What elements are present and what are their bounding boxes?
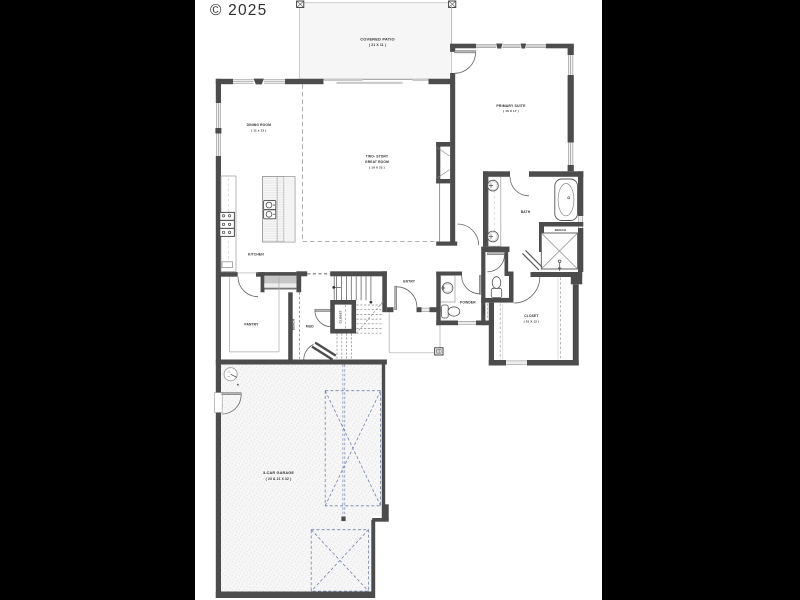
svg-text:BENCH: BENCH — [292, 319, 296, 330]
svg-text:COVERED PATIO: COVERED PATIO — [360, 36, 394, 41]
svg-text:PRIMARY SUITE: PRIMARY SUITE — [496, 104, 526, 108]
svg-text:GREAT ROOM: GREAT ROOM — [365, 160, 389, 164]
svg-text:© 2025: © 2025 — [210, 2, 267, 19]
svg-text:3-CAR GARAGE: 3-CAR GARAGE — [263, 471, 294, 475]
svg-text:LINEN: LINEN — [482, 305, 486, 314]
svg-text:KITCHEN: KITCHEN — [248, 252, 264, 256]
svg-text:ENTRY: ENTRY — [403, 279, 415, 283]
svg-text:( 16 X 17 ): ( 16 X 17 ) — [503, 109, 519, 113]
svg-text:DINING ROOM: DINING ROOM — [247, 123, 271, 127]
svg-text:( 19 X 22 ): ( 19 X 22 ) — [369, 165, 385, 169]
svg-text:( 11 x 13 ): ( 11 x 13 ) — [251, 128, 266, 132]
svg-text:PANTRY: PANTRY — [244, 322, 259, 326]
svg-text:( 23 & 21 X 32 ): ( 23 & 21 X 32 ) — [266, 477, 292, 481]
svg-text:CLOSET: CLOSET — [524, 314, 538, 318]
svg-text:TWO- STORY: TWO- STORY — [366, 155, 389, 159]
svg-text:MUD: MUD — [306, 324, 314, 328]
svg-text:BENCH: BENCH — [555, 228, 566, 232]
svg-text:BATH: BATH — [521, 210, 531, 214]
svg-text:CLOSET: CLOSET — [339, 310, 343, 323]
svg-text:POWDER: POWDER — [460, 301, 476, 305]
svg-text:( 10 X 12 ): ( 10 X 12 ) — [524, 320, 540, 324]
svg-text:( 21 X 11 ): ( 21 X 11 ) — [369, 43, 386, 47]
